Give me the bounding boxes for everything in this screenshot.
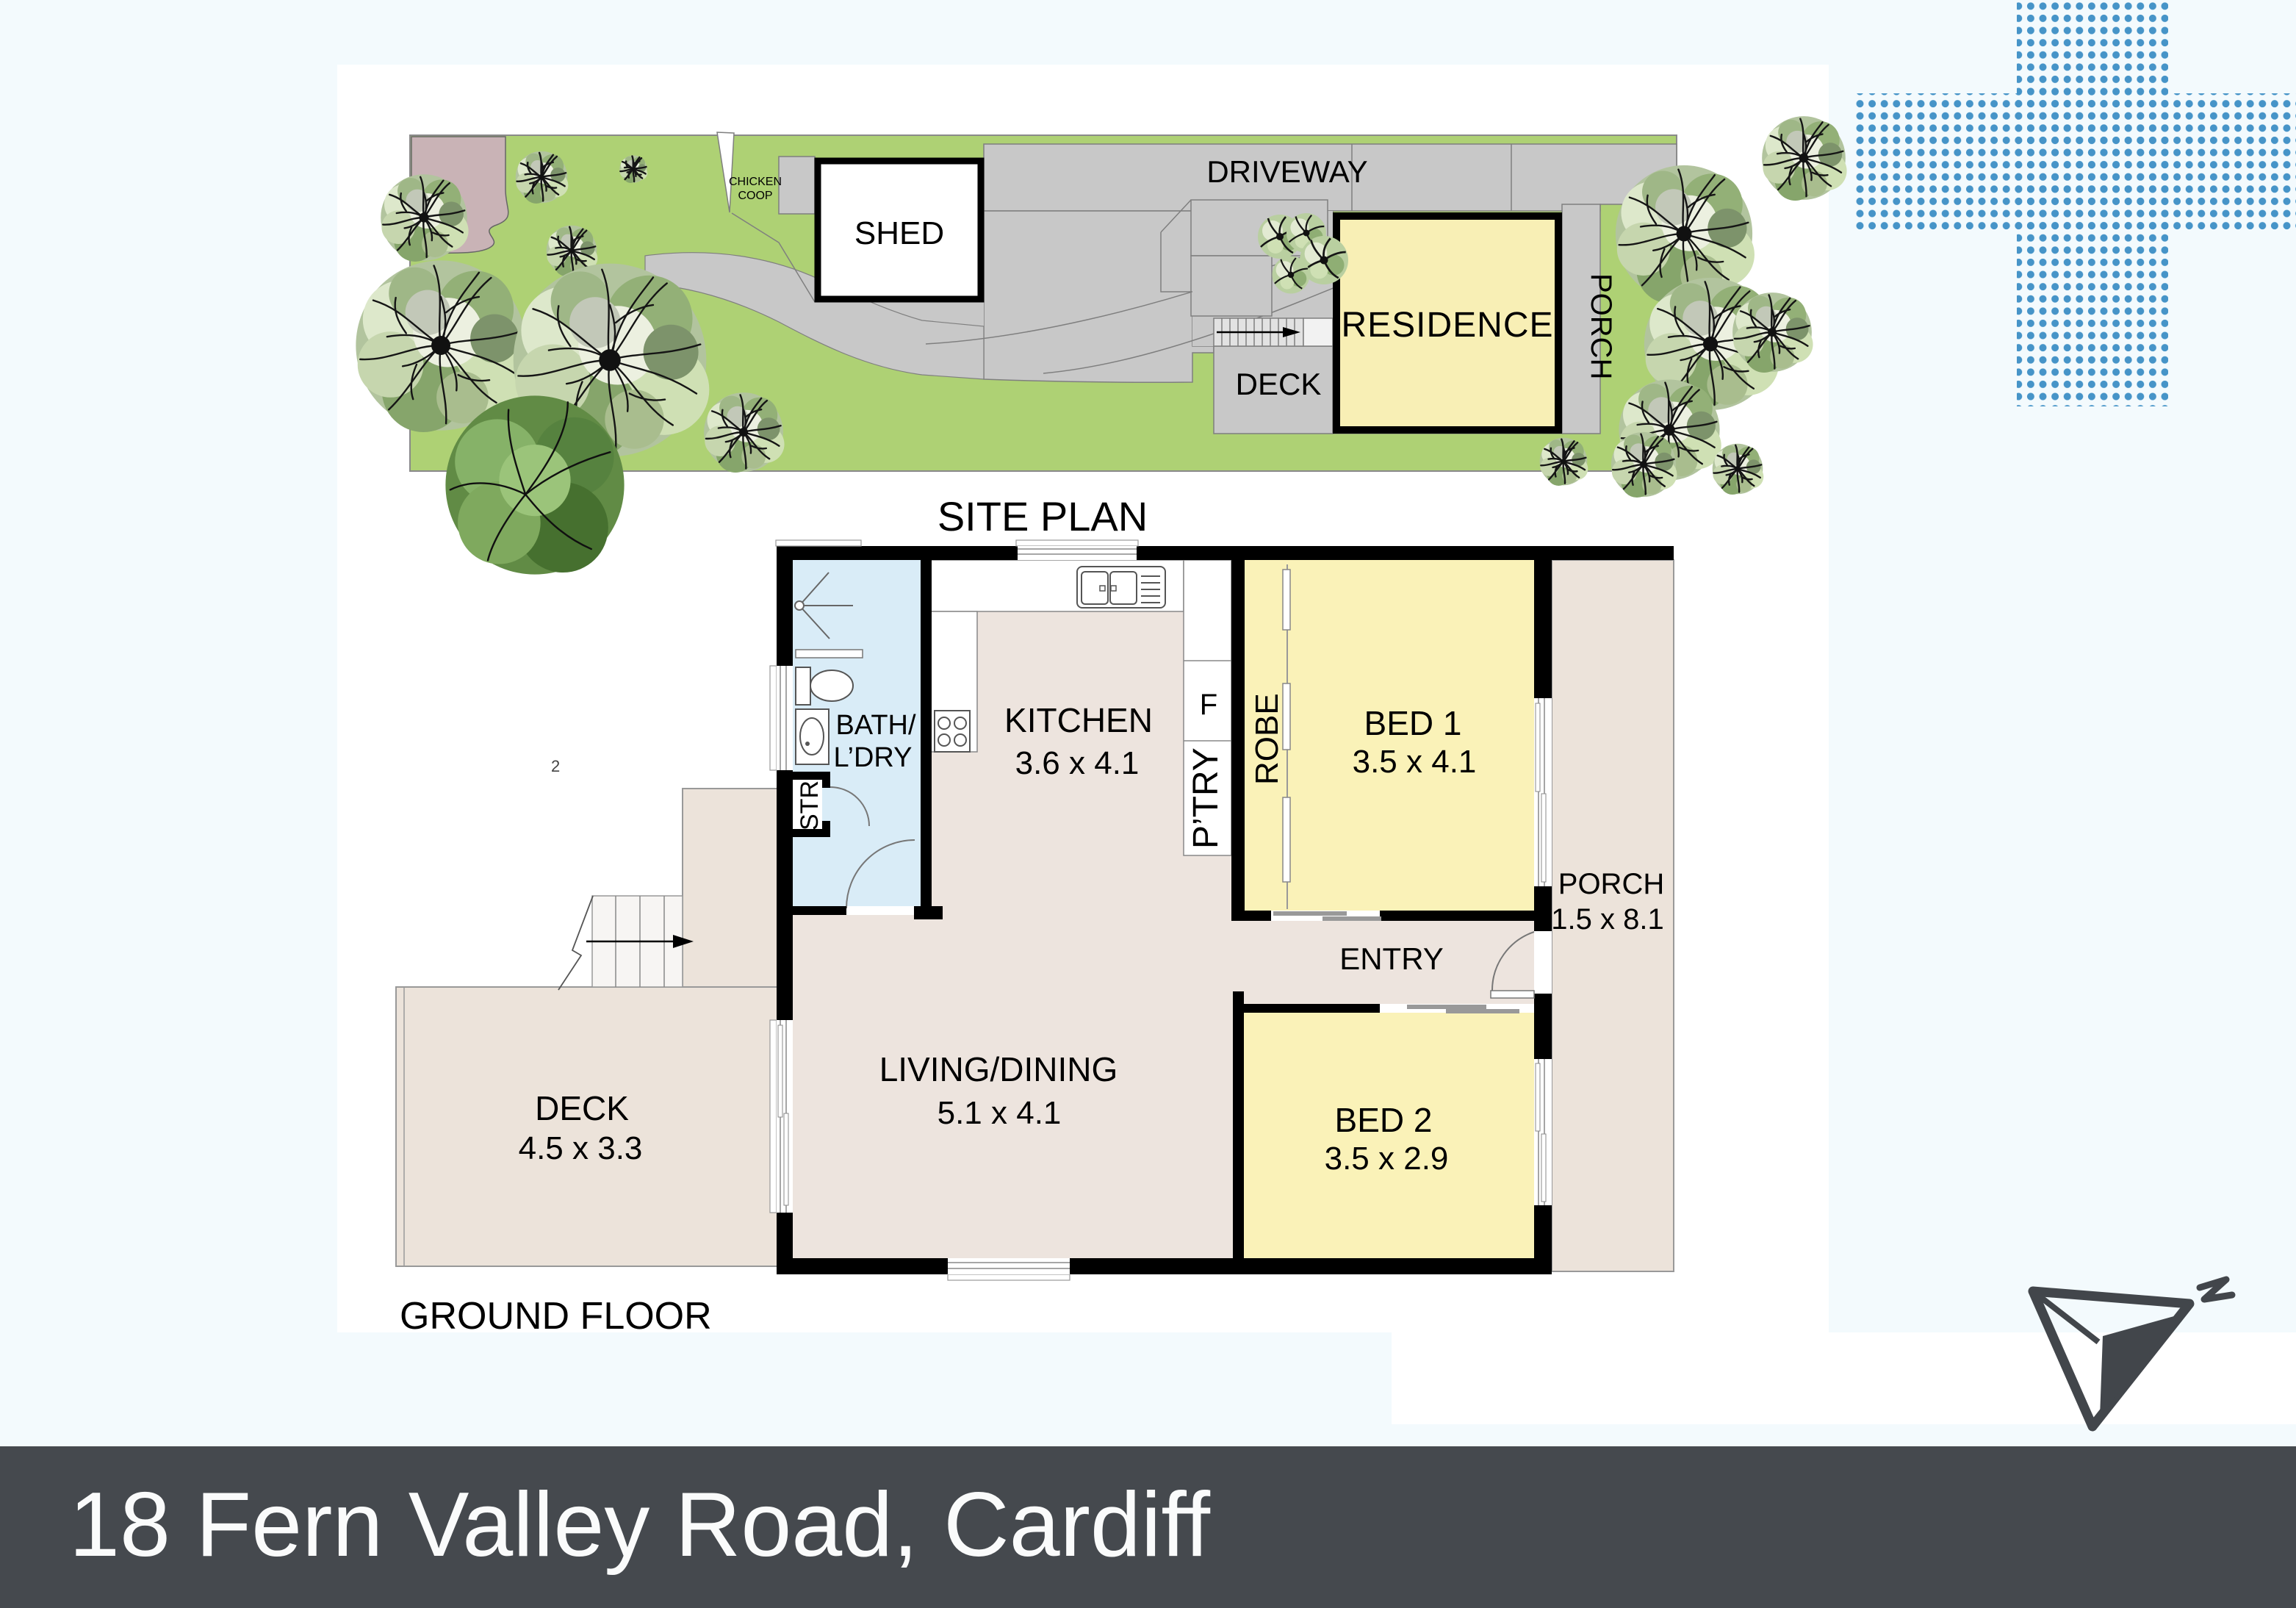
svg-text:DECK: DECK bbox=[535, 1089, 629, 1127]
svg-text:3.6 x 4.1: 3.6 x 4.1 bbox=[1015, 745, 1140, 781]
svg-text:PORCH: PORCH bbox=[1585, 273, 1617, 379]
svg-text:L’DRY: L’DRY bbox=[833, 742, 912, 773]
svg-text:1.5 x 8.1: 1.5 x 8.1 bbox=[1551, 903, 1663, 936]
svg-text:P’TRY: P’TRY bbox=[1187, 747, 1226, 849]
svg-text:KITCHEN: KITCHEN bbox=[1004, 701, 1153, 739]
svg-text:18 Fern Valley Road, Cardiff: 18 Fern Valley Road, Cardiff bbox=[69, 1474, 1211, 1576]
svg-text:5.1 x 4.1: 5.1 x 4.1 bbox=[938, 1095, 1062, 1131]
svg-text:BED 2: BED 2 bbox=[1335, 1101, 1433, 1139]
svg-text:3.5 x 2.9: 3.5 x 2.9 bbox=[1325, 1141, 1449, 1177]
svg-text:COOP: COOP bbox=[738, 190, 772, 202]
svg-text:STR: STR bbox=[796, 780, 824, 830]
svg-text:ROBE: ROBE bbox=[1249, 693, 1285, 785]
svg-text:PORCH: PORCH bbox=[1558, 868, 1664, 900]
svg-text:4.5 x 3.3: 4.5 x 3.3 bbox=[519, 1130, 643, 1166]
svg-text:ENTRY: ENTRY bbox=[1339, 941, 1444, 976]
svg-text:SITE PLAN: SITE PLAN bbox=[938, 493, 1148, 539]
svg-text:2: 2 bbox=[551, 757, 560, 775]
svg-text:BATH/: BATH/ bbox=[835, 710, 916, 741]
svg-text:GROUND FLOOR: GROUND FLOOR bbox=[400, 1295, 712, 1338]
svg-text:RESIDENCE: RESIDENCE bbox=[1341, 306, 1553, 345]
svg-text:DRIVEWAY: DRIVEWAY bbox=[1206, 154, 1367, 189]
svg-text:3.5 x 4.1: 3.5 x 4.1 bbox=[1353, 744, 1477, 780]
svg-text:DECK: DECK bbox=[1236, 367, 1322, 401]
svg-text:SHED: SHED bbox=[854, 215, 944, 251]
svg-text:F: F bbox=[1200, 689, 1217, 721]
svg-text:LIVING/DINING: LIVING/DINING bbox=[879, 1050, 1118, 1088]
svg-text:CHICKEN: CHICKEN bbox=[729, 176, 782, 188]
svg-text:BED 1: BED 1 bbox=[1364, 704, 1462, 742]
